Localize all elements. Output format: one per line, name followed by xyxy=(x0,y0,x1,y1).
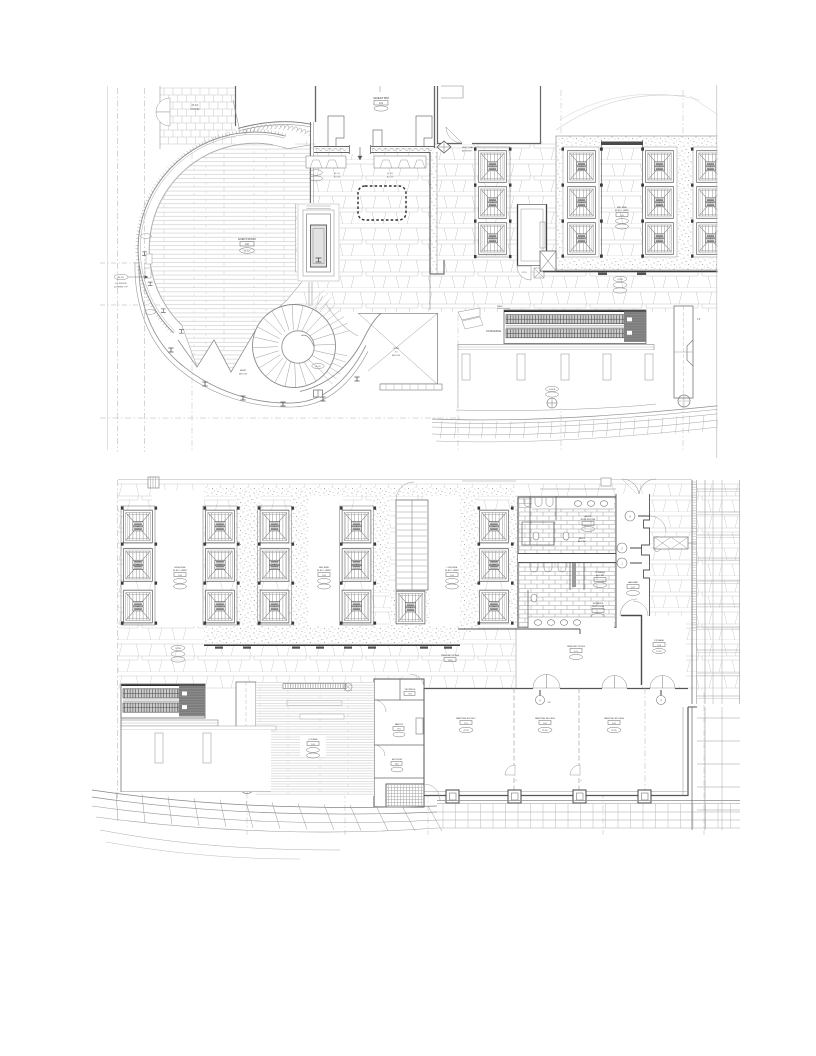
svg-text:ELEV. LOBBY: ELEV. LOBBY xyxy=(173,570,187,572)
svg-text:ALIGN: ALIGN xyxy=(387,176,394,179)
svg-text:CONCIERGE: CONCIERGE xyxy=(486,330,501,333)
svg-text:BLDG RESTRM: BLDG RESTRM xyxy=(581,519,596,521)
svg-text:PREFUNCTION B: PREFUNCTION B xyxy=(567,646,585,648)
svg-text:LOUNGE: LOUNGE xyxy=(308,739,318,741)
svg-text:ELEV. LOBBY: ELEV. LOBBY xyxy=(317,570,331,572)
svg-text:(B-14): (B-14) xyxy=(387,173,393,175)
svg-text:HIGH RISE: HIGH RISE xyxy=(174,567,186,569)
svg-text:BELOW: BELOW xyxy=(239,374,248,376)
svg-text:RESTROOM: RESTROOM xyxy=(592,606,604,608)
svg-text:WOMEN'S: WOMEN'S xyxy=(595,572,605,574)
svg-text:(P-02): (P-02) xyxy=(542,730,548,732)
svg-text:ACC WC: ACC WC xyxy=(596,574,605,577)
svg-text:LOW RISE: LOW RISE xyxy=(447,567,458,569)
svg-text:MEETING ROOM A: MEETING ROOM A xyxy=(604,717,624,720)
svg-text:(B-14): (B-14) xyxy=(334,173,340,175)
svg-text:EXTERIOR: EXTERIOR xyxy=(115,283,127,285)
svg-text:MEN'S: MEN'S xyxy=(579,538,586,540)
svg-text:(P-02): (P-02) xyxy=(611,730,617,732)
svg-text:ACC WC: ACC WC xyxy=(578,540,587,543)
svg-text:CORE: CORE xyxy=(617,279,624,281)
svg-text:ALIGN: ALIGN xyxy=(334,176,341,179)
svg-text:(P-02): (P-02) xyxy=(463,730,469,732)
svg-text:(B-02): (B-02) xyxy=(192,104,199,107)
svg-text:MEN'S: MEN'S xyxy=(585,516,592,518)
svg-text:WALK: WALK xyxy=(497,305,504,308)
svg-text:BELOW: BELOW xyxy=(392,355,401,357)
svg-text:WOMEN'S: WOMEN'S xyxy=(593,603,604,605)
svg-text:TO: TO xyxy=(395,352,398,354)
svg-text:SCREEN TYP: SCREEN TYP xyxy=(114,287,128,289)
svg-text:(P-02): (P-02) xyxy=(656,651,662,653)
svg-text:ELEV. LOBBY: ELEV. LOBBY xyxy=(445,570,459,572)
svg-text:RAMP: RAMP xyxy=(240,369,247,372)
svg-text:(B-02): (B-02) xyxy=(244,251,250,253)
svg-text:MEETING ROOM C: MEETING ROOM C xyxy=(456,718,476,720)
svg-text:STORAGE: STORAGE xyxy=(654,639,664,642)
svg-text:ELEV. LOBBY: ELEV. LOBBY xyxy=(615,210,629,212)
svg-text:AV ROOM: AV ROOM xyxy=(392,758,402,761)
svg-text:(B-15): (B-15) xyxy=(118,277,124,279)
svg-text:PASTORAL: PASTORAL xyxy=(462,146,474,149)
svg-text:GREAT RM: GREAT RM xyxy=(373,96,389,100)
svg-text:MID RISE: MID RISE xyxy=(617,207,627,209)
svg-text:VESTIBULE: VESTIBULE xyxy=(405,689,416,691)
svg-text:ARCHIVE: ARCHIVE xyxy=(462,150,472,153)
svg-text:CORE: CORE xyxy=(175,648,182,650)
svg-text:PANTRY: PANTRY xyxy=(395,723,404,726)
svg-text:OPEN: OPEN xyxy=(393,348,400,350)
svg-text:101: 101 xyxy=(379,101,384,105)
svg-text:EVENT ROOM: EVENT ROOM xyxy=(238,237,255,241)
svg-text:MID RISE: MID RISE xyxy=(319,567,329,569)
svg-text:PLAZA: PLAZA xyxy=(549,388,556,391)
svg-text:(B-02): (B-02) xyxy=(315,366,321,368)
svg-text:MEETING ROOM B: MEETING ROOM B xyxy=(535,718,555,720)
svg-text:100: 100 xyxy=(245,243,250,246)
svg-text:PREFUNCTION A: PREFUNCTION A xyxy=(441,654,459,657)
svg-text:STOR: STOR xyxy=(521,272,527,274)
svg-text:CHAPEL: CHAPEL xyxy=(190,108,200,111)
svg-text:HALLWAY: HALLWAY xyxy=(628,581,639,584)
